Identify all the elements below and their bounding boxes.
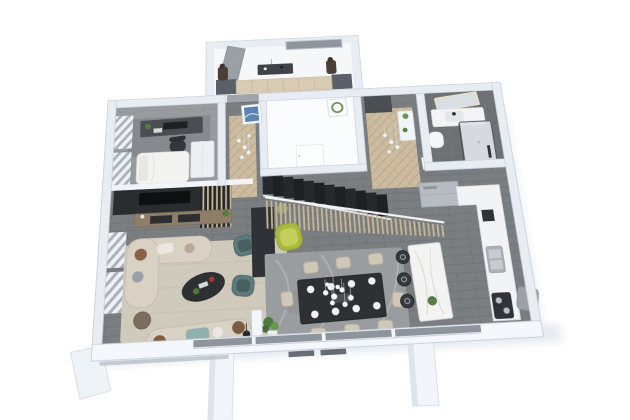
floorplan-svg — [0, 19, 630, 420]
office-blinds-2 — [111, 152, 131, 185]
dining-table — [297, 273, 386, 324]
hallway-west — [229, 115, 257, 198]
living-blinds-1 — [106, 232, 126, 269]
floor-mat-left — [216, 79, 236, 95]
floorplan-canvas — [0, 0, 630, 420]
bed — [136, 151, 189, 184]
living-blinds-2 — [104, 271, 125, 313]
coffee-machine — [481, 209, 495, 221]
plant-shelf — [397, 111, 415, 141]
annex-threshold — [227, 94, 259, 103]
cooktop — [492, 292, 514, 318]
art-frame-blue — [241, 104, 261, 125]
office-blinds-1 — [114, 115, 134, 149]
floor-mat-right — [331, 74, 352, 90]
wall-stub-center — [208, 352, 234, 420]
floorplan-3d-scene — [0, 19, 630, 420]
entry-annex — [206, 35, 363, 96]
tv — [139, 191, 191, 206]
art-frame-green — [327, 98, 348, 117]
wall-stub-right — [408, 341, 439, 406]
fridge-cabinets — [419, 181, 461, 207]
toilet — [428, 132, 444, 148]
teal-armchair-2 — [231, 275, 255, 297]
walk-in-shower — [459, 121, 497, 163]
office-bedroom — [111, 103, 217, 185]
